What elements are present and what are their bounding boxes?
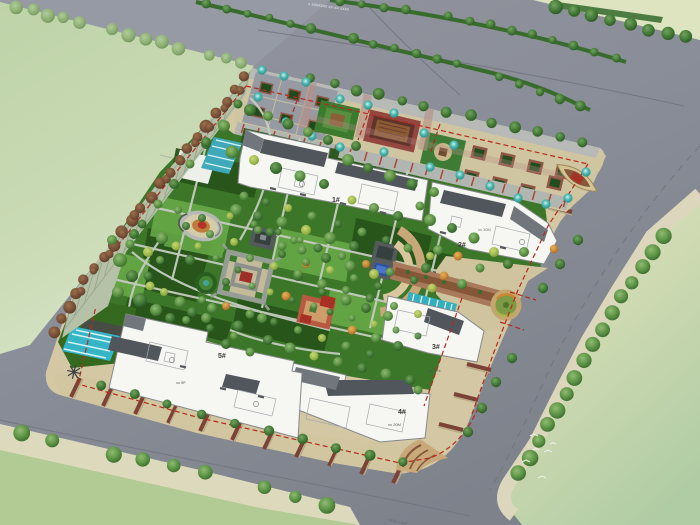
svg-text:xx 9F: xx 9F bbox=[176, 380, 186, 385]
svg-text:1#: 1# bbox=[332, 197, 340, 204]
svg-text:3#: 3# bbox=[432, 344, 440, 351]
svg-text:4#: 4# bbox=[398, 409, 406, 416]
svg-text:xx 20M: xx 20M bbox=[388, 422, 401, 427]
svg-text:xx 9.7x: xx 9.7x bbox=[428, 368, 441, 373]
svg-text:5#: 5# bbox=[218, 353, 226, 360]
svg-text:2#: 2# bbox=[458, 242, 466, 249]
svg-text:xx 30M: xx 30M bbox=[478, 227, 491, 232]
